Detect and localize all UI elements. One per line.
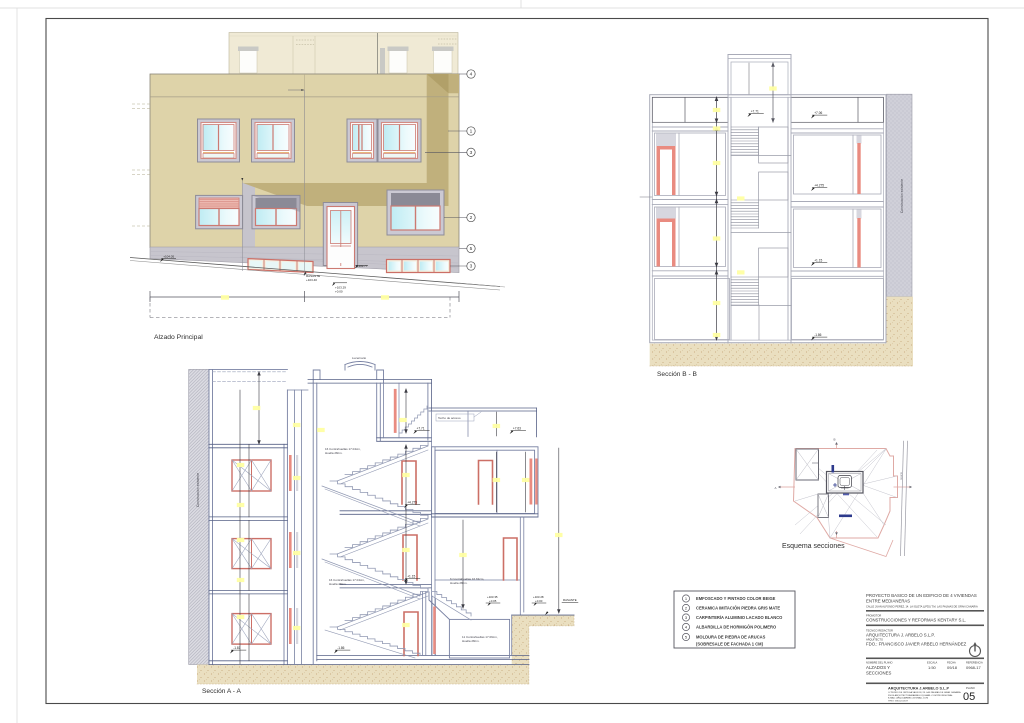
svg-text:CARPINTERÍA ALUMINIO LACADO B: CARPINTERÍA ALUMINIO LACADO BLANCO xyxy=(696,615,783,620)
svg-text:+0.00: +0.00 xyxy=(335,290,343,294)
svg-text:FDO.: FRANCISCO JAVIER ARBELO: FDO.: FRANCISCO JAVIER ARBELO HERNÁNDEZ xyxy=(866,642,967,647)
svg-text:5: 5 xyxy=(470,246,473,252)
svg-text:+103.40: +103.40 xyxy=(306,278,317,282)
svg-text:A: A xyxy=(775,486,777,490)
svg-text:ESCALA: ESCALA xyxy=(927,661,938,665)
svg-text:SECCIONES: SECCIONES xyxy=(866,671,891,676)
svg-text:35014 ARQUITECTURAJARBELO@GMAI: 35014 ARQUITECTURAJARBELO@GMAIL.COM PROF… xyxy=(888,694,953,697)
svg-text:Huella 28cm.: Huella 28cm. xyxy=(325,451,343,455)
svg-text:C/ PEDRO DE ORTEGA VALRON, 28.: C/ PEDRO DE ORTEGA VALRON, 28. LAS PALMA… xyxy=(888,691,961,694)
svg-text:1: 1 xyxy=(470,129,473,135)
svg-text:+7.71: +7.71 xyxy=(751,110,759,114)
svg-text:B: B xyxy=(834,438,836,442)
svg-text:E-MAIL: ARQUIJARBELO@GMAIL.CO: E-MAIL: ARQUIJARBELO@GMAIL.COM xyxy=(888,697,928,700)
svg-text:CONSTRUCCIONES Y REFORMAS KENT: CONSTRUCCIONES Y REFORMAS KENTARY S.L. xyxy=(866,618,966,623)
svg-text:FECHA: FECHA xyxy=(947,661,956,665)
svg-text:09/18: 09/18 xyxy=(947,665,958,670)
svg-text:Huella 28cm.: Huella 28cm. xyxy=(329,582,347,586)
svg-text:05: 05 xyxy=(963,691,975,703)
svg-text:(SOBRESALE DE FACHADA 1 CM): (SOBRESALE DE FACHADA 1 CM) xyxy=(696,642,764,647)
svg-text:NOMBRE DEL PLANO: NOMBRE DEL PLANO xyxy=(866,661,893,665)
svg-text:+7.71: +7.71 xyxy=(417,427,425,431)
svg-text:+103.77: +103.77 xyxy=(357,264,368,268)
svg-text:CALLE JUAN ALFONSO PEREZ, 14.: CALLE JUAN ALFONSO PEREZ, 14. LA ISLETA … xyxy=(866,605,978,609)
svg-text:PROYECTO BASICO DE UN EDIFICIO: PROYECTO BASICO DE UN EDIFICIO DE 4 VIVI… xyxy=(866,593,977,598)
svg-text:RASANTE: RASANTE xyxy=(563,598,577,602)
svg-text:+0.05: +0.05 xyxy=(489,599,497,603)
svg-text:ALZADOS Y: ALZADOS Y xyxy=(866,665,890,670)
svg-text:Sección B - B: Sección B - B xyxy=(657,371,698,378)
svg-text:1:50: 1:50 xyxy=(928,665,937,670)
svg-text:Esquema secciones: Esquema secciones xyxy=(782,543,845,550)
svg-text:TFNO: 690.62.63.87: TFNO: 690.62.63.87 xyxy=(888,700,909,702)
svg-text:-1.81: -1.81 xyxy=(233,646,240,650)
svg-text:EMFOSCADO Y PINTADO COLOR BEIG: EMFOSCADO Y PINTADO COLOR BEIGE xyxy=(696,596,776,601)
svg-text:-1.86: -1.86 xyxy=(337,646,344,650)
svg-text:3: 3 xyxy=(470,150,473,156)
svg-text:-1.86: -1.86 xyxy=(814,333,821,337)
svg-text:ARQUITECTURA J. ARBELO S.L.P.: ARQUITECTURA J. ARBELO S.L.P. xyxy=(866,633,935,638)
svg-text:rasante: rasante xyxy=(900,471,903,480)
svg-text:Huella 28cm.: Huella 28cm. xyxy=(462,639,480,643)
svg-text:Sección A - A: Sección A - A xyxy=(202,688,241,695)
svg-text:ARQUITECTURA J.ARBELO S.L.P: ARQUITECTURA J.ARBELO S.L.P xyxy=(888,687,950,691)
svg-text:+4.275: +4.275 xyxy=(814,184,824,188)
svg-text:4: 4 xyxy=(470,72,473,78)
svg-text:CERAMICA IMITACIÓN PIEDRA GRIS: CERAMICA IMITACIÓN PIEDRA GRIS MATE xyxy=(696,606,780,611)
svg-text:Construcción existente: Construcción existente xyxy=(196,473,200,507)
svg-text:Alzado Principal: Alzado Principal xyxy=(154,334,203,341)
svg-text:3: 3 xyxy=(470,264,473,270)
svg-text:ENTRE MEDIANERAS: ENTRE MEDIANERAS xyxy=(866,599,910,604)
svg-text:+1.15: +1.15 xyxy=(814,259,822,263)
svg-text:PLANO: PLANO xyxy=(966,686,975,690)
svg-text:+7.06: +7.06 xyxy=(814,111,822,115)
svg-text:Huella 28cm.: Huella 28cm. xyxy=(450,581,468,585)
svg-text:Techo de acceso: Techo de acceso xyxy=(438,416,461,420)
svg-text:MOLDURA DE PIEDRA DE ARUCAS: MOLDURA DE PIEDRA DE ARUCAS xyxy=(696,635,766,640)
svg-text:+4.275: +4.275 xyxy=(407,501,417,505)
svg-text:+0.00: +0.00 xyxy=(535,599,543,603)
svg-text:+7.63: +7.63 xyxy=(513,427,521,431)
svg-text:ALBARDILLA DE HORMIGÓN POLIMER: ALBARDILLA DE HORMIGÓN POLIMERO xyxy=(696,625,777,630)
svg-text:+104.05: +104.05 xyxy=(163,255,174,259)
svg-text:Construcción existente: Construcción existente xyxy=(900,179,904,213)
svg-text:REFERENCIA: REFERENCIA xyxy=(966,661,983,665)
svg-text:Lucernario: Lucernario xyxy=(352,356,367,360)
svg-text:+1.15: +1.15 xyxy=(407,575,415,579)
svg-text:0968-17: 0968-17 xyxy=(966,665,981,670)
svg-text:2: 2 xyxy=(470,215,473,221)
